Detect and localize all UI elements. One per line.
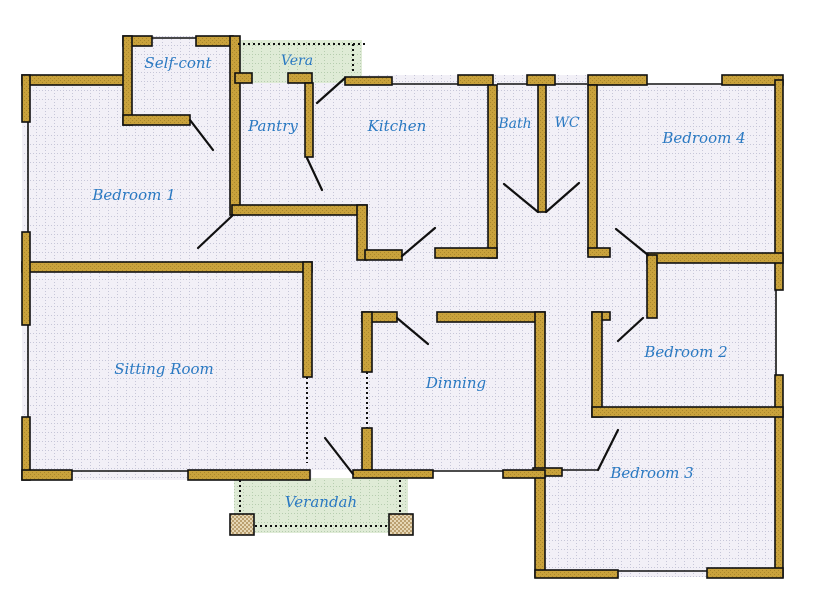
verandah-pillar-left xyxy=(230,514,254,535)
floor-plan-canvas: Self-cont Vera Pantry Kitchen Bath WC Be… xyxy=(0,0,820,614)
room-label-wc: WC xyxy=(554,115,579,131)
wall-segment xyxy=(592,312,602,417)
wall-segment xyxy=(232,205,367,215)
wall-segment xyxy=(647,255,657,318)
wall-segment xyxy=(722,75,783,85)
wall-segment xyxy=(535,312,545,577)
wall-segment xyxy=(288,73,312,83)
room-label-bath: Bath xyxy=(497,116,531,132)
wall-segment xyxy=(188,470,310,480)
verandah-pillar-right xyxy=(389,514,413,535)
room-label-bedroom-4: Bedroom 4 xyxy=(661,129,745,147)
wall-segment xyxy=(365,250,402,260)
room-label-sitting-room: Sitting Room xyxy=(114,360,214,378)
wall-segment xyxy=(458,75,493,85)
wall-segment xyxy=(535,570,618,578)
wall-segment xyxy=(588,75,647,85)
room-label-bedroom-3: Bedroom 3 xyxy=(609,464,693,482)
wall-segment xyxy=(362,312,372,372)
wall-segment xyxy=(22,75,30,122)
wall-segment xyxy=(588,248,610,257)
room-label-verandah: Verandah xyxy=(285,493,357,511)
room-label-bedroom-2: Bedroom 2 xyxy=(643,343,727,361)
room-label-bedroom-1: Bedroom 1 xyxy=(91,186,175,204)
wall-segment xyxy=(230,36,240,215)
wall-segment xyxy=(588,85,597,253)
wall-segment xyxy=(707,568,783,578)
wall-segment xyxy=(437,312,545,322)
room-label-kitchen: Kitchen xyxy=(367,117,427,135)
wall-segment xyxy=(235,73,252,83)
wall-segment xyxy=(775,375,783,577)
wall-segment xyxy=(305,83,313,157)
wall-segment xyxy=(647,253,783,263)
wall-segment xyxy=(538,85,546,212)
wall-segment xyxy=(345,77,392,85)
wall-segment xyxy=(435,248,497,258)
room-label-dinning: Dinning xyxy=(425,374,486,392)
wall-segment xyxy=(22,232,30,325)
room-floor-bedroom-2 xyxy=(598,257,775,417)
wall-segment xyxy=(488,85,497,258)
wall-segment xyxy=(353,470,433,478)
wall-segment xyxy=(22,75,130,85)
wall-segment xyxy=(362,428,372,470)
wall-segment xyxy=(196,36,233,46)
room-label-vera: Vera xyxy=(281,53,313,69)
wall-segment xyxy=(527,75,555,85)
wall-segment xyxy=(123,36,132,125)
wall-segment xyxy=(303,262,312,377)
room-floor-bedroom-4 xyxy=(598,85,775,257)
wall-segment xyxy=(22,262,312,272)
room-floor-bedroom-3 xyxy=(535,417,775,577)
room-label-self-cont: Self-cont xyxy=(144,54,212,72)
floor-plan-drawing: Self-cont Vera Pantry Kitchen Bath WC Be… xyxy=(0,0,820,614)
room-label-pantry: Pantry xyxy=(247,117,298,135)
wall-segment xyxy=(503,470,545,478)
wall-segment xyxy=(22,470,72,480)
wall-segment xyxy=(123,115,190,125)
wall-segment xyxy=(592,407,783,417)
